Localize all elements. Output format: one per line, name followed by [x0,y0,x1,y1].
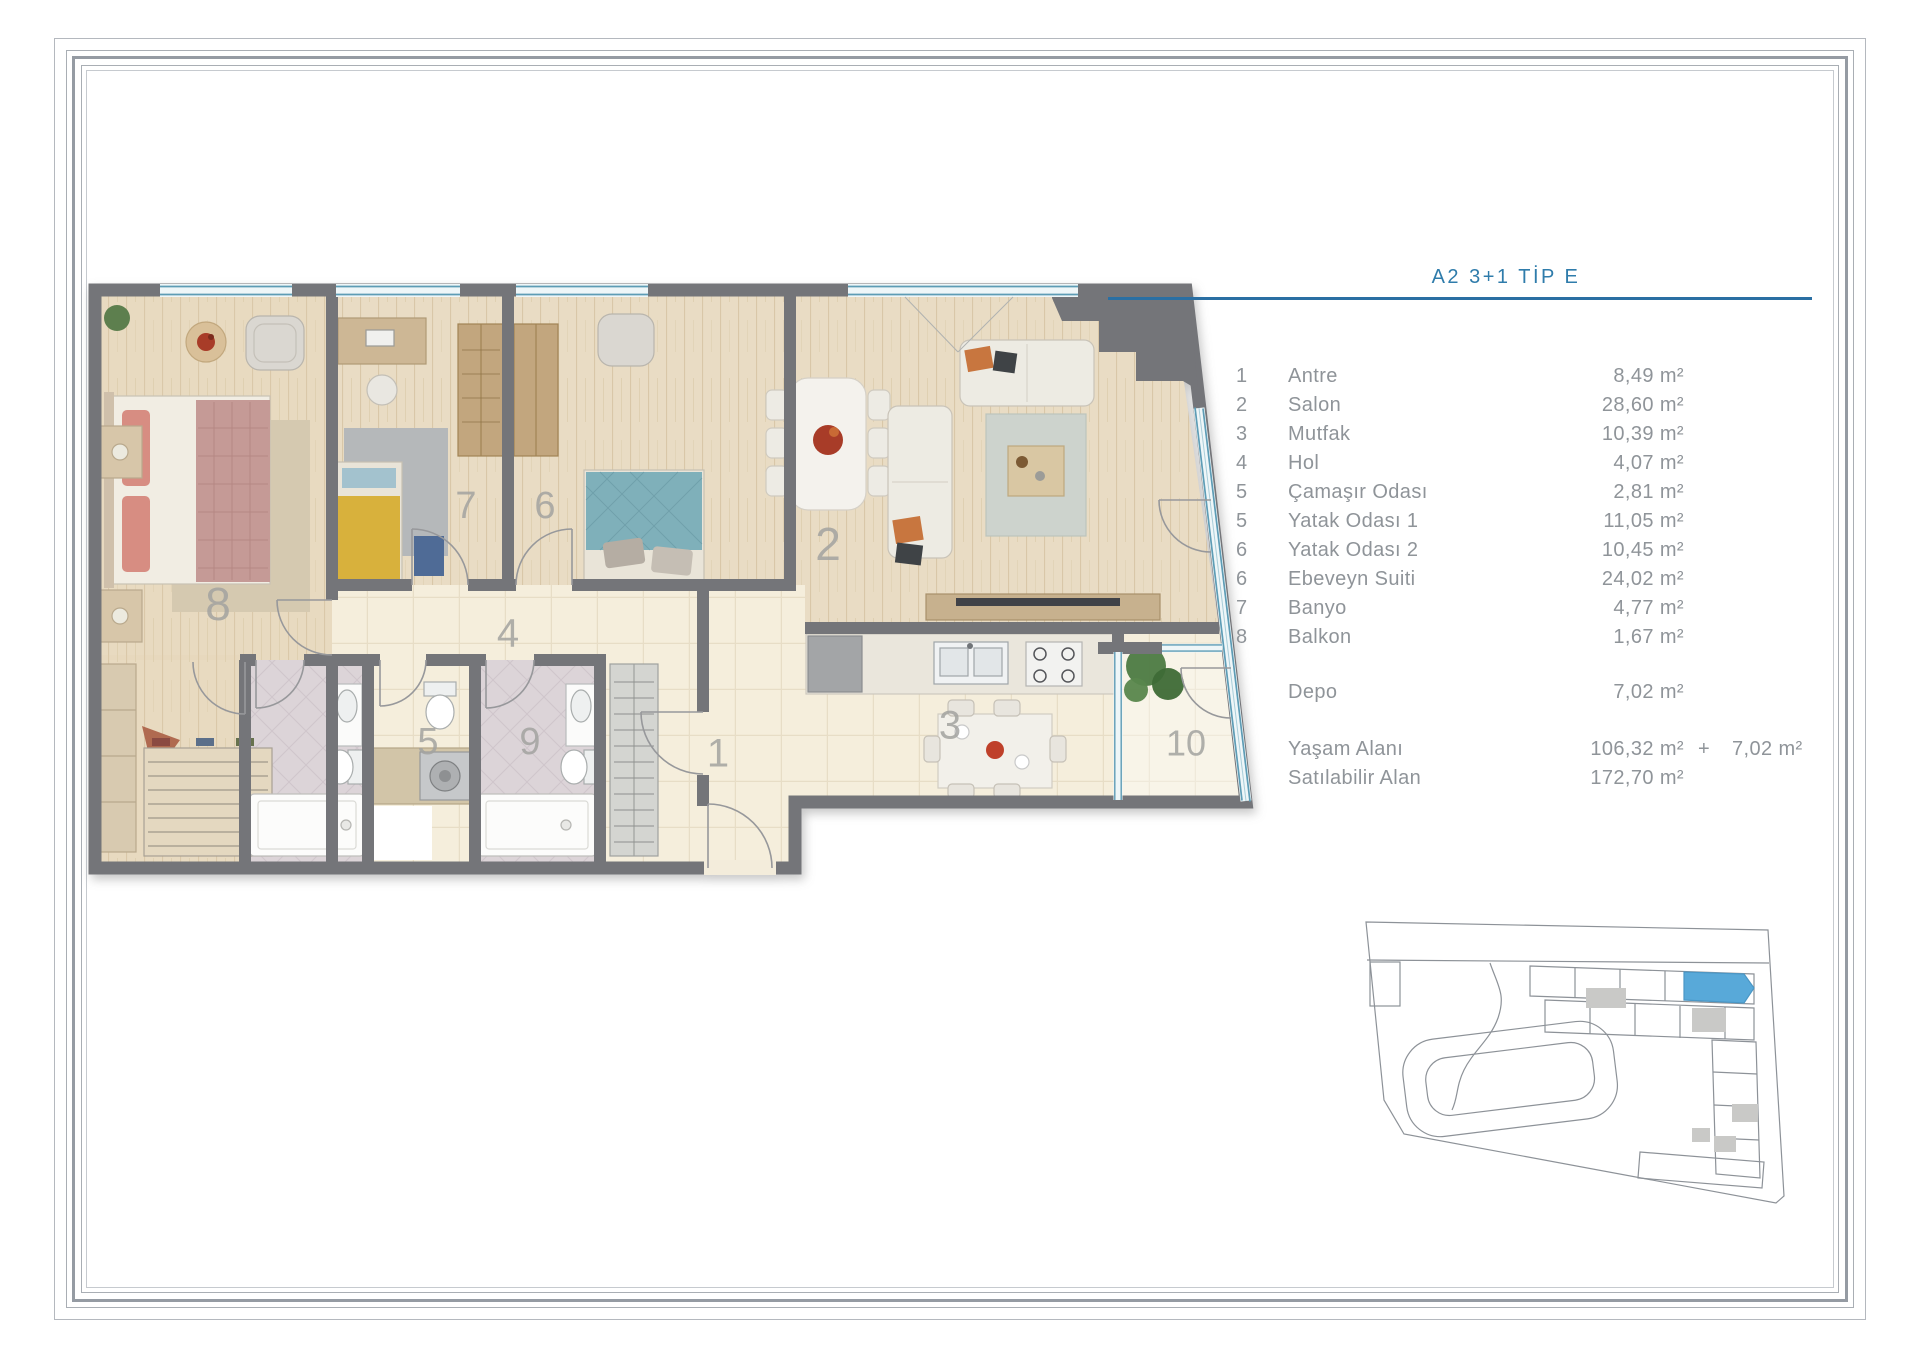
room-name: Salon [1288,391,1341,420]
total-area: 172,70 m² [1590,764,1684,793]
storage-area: 7,02 m² [1613,678,1684,707]
total-name: Satılabilir Alan [1288,764,1421,793]
plus-sign: + [1698,735,1710,764]
total-name: Yaşam Alanı [1288,735,1403,764]
room-number-1: 1 [707,732,729,776]
room-name: Antre [1288,362,1338,391]
storage-row: Depo7,02 m² [1108,678,1812,707]
room-area: 11,05 m² [1603,507,1684,536]
extra-area: 7,02 m² [1732,735,1803,764]
legend-row: 7Banyo4,77 m² [1108,594,1812,623]
total-area: 106,32 m² [1590,735,1684,764]
room-name: Çamaşır Odası [1288,478,1428,507]
room-area: 28,60 m² [1602,391,1684,420]
room-area: 8,49 m² [1613,362,1684,391]
unit-type-title: A2 3+1 TİP E [1154,266,1858,291]
totals-section: Yaşam Alanı106,32 m²+7,02 m² Satılabilir… [1108,735,1812,793]
room-name: Yatak Odası 1 [1288,507,1418,536]
room-area: 10,39 m² [1602,420,1684,449]
room-area: 4,77 m² [1613,594,1684,623]
legend-row: 6Yatak Odası 210,45 m² [1108,536,1812,565]
room-num: 8 [1236,623,1248,652]
room-num: 7 [1236,594,1248,623]
site-key-plan [1340,900,1810,1215]
legend-row: 4Hol4,07 m² [1108,449,1812,478]
legend-row: 5Yatak Odası 111,05 m² [1108,507,1812,536]
room-name: Mutfak [1288,420,1350,449]
floor-plan-sheet: 1 2 3 4 5 6 7 8 9 10 A2 3+1 TİP E 1Antre… [0,0,1920,1358]
legend-row: 6Ebeveyn Suiti24,02 m² [1108,565,1812,594]
room-num: 3 [1236,420,1248,449]
legend-panel: A2 3+1 TİP E 1Antre8,49 m² 2Salon28,60 m… [1108,266,1812,793]
legend-rows: 1Antre8,49 m² 2Salon28,60 m² 3Mutfak10,3… [1108,362,1812,652]
legend-row: 8Balkon1,67 m² [1108,623,1812,652]
room-num: 4 [1236,449,1248,478]
storage-section: Depo7,02 m² [1108,678,1812,707]
room-number-2: 2 [815,518,841,570]
legend-row: 3Mutfak10,39 m² [1108,420,1812,449]
room-area: 10,45 m² [1602,536,1684,565]
room-number-9: 9 [519,721,540,763]
room-name: Hol [1288,449,1319,478]
legend-row: 5Çamaşır Odası2,81 m² [1108,478,1812,507]
highlighted-unit [1684,972,1754,1003]
room-number-8: 8 [205,578,231,630]
room-name: Balkon [1288,623,1352,652]
title-rule [1108,297,1812,300]
floor-plan: 1 2 3 4 5 6 7 8 9 10 [83,235,1263,885]
room-area: 4,07 m² [1613,449,1684,478]
room-number-3: 3 [939,704,961,748]
total-row: Yaşam Alanı106,32 m²+7,02 m² [1108,735,1812,764]
room-name: Banyo [1288,594,1347,623]
room-name: Ebeveyn Suiti [1288,565,1416,594]
room-name: Yatak Odası 2 [1288,536,1418,565]
room-num: 6 [1236,565,1248,594]
room-number-6: 6 [534,485,555,527]
legend-row: 1Antre8,49 m² [1108,362,1812,391]
room-area: 1,67 m² [1613,623,1684,652]
room-number-5: 5 [417,721,438,763]
room-area: 2,81 m² [1613,478,1684,507]
room-num: 6 [1236,536,1248,565]
room-num: 1 [1236,362,1248,391]
storage-name: Depo [1288,678,1337,707]
room-num: 5 [1236,507,1248,536]
room-area: 24,02 m² [1602,565,1684,594]
room-num: 5 [1236,478,1248,507]
room-number-7: 7 [455,485,476,527]
legend-row: 2Salon28,60 m² [1108,391,1812,420]
room-number-4: 4 [497,612,519,656]
total-row: Satılabilir Alan172,70 m² [1108,764,1812,793]
room-num: 2 [1236,391,1248,420]
